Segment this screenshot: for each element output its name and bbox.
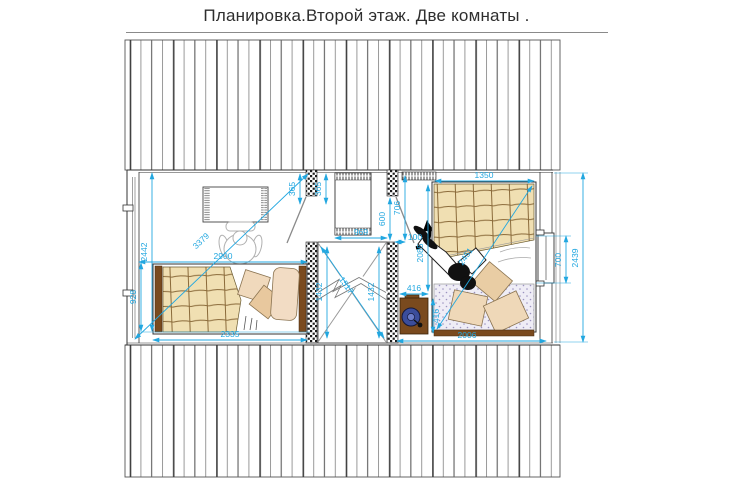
dim-right-bed-length: 2085 bbox=[415, 243, 425, 262]
roof-planks-bottom bbox=[125, 345, 560, 477]
dim-desk-width: 416 bbox=[407, 283, 421, 293]
roof-planks-top bbox=[125, 40, 560, 170]
dim-closet-width: 969 bbox=[354, 227, 368, 237]
left-bed-headboard bbox=[155, 266, 162, 332]
left-window-handle-top bbox=[123, 205, 133, 211]
right-bed-footboard bbox=[434, 330, 534, 336]
dim-left-width-top: 2900 bbox=[214, 251, 233, 261]
dim-stairs-right: 1432 bbox=[366, 282, 376, 301]
left-bed bbox=[153, 264, 307, 334]
dim-left-diagonal: 3379 bbox=[191, 231, 212, 251]
dim-left-window-zone: 928 bbox=[128, 290, 138, 304]
right-desk bbox=[400, 295, 428, 334]
dim-right-room-width: 2006 bbox=[458, 330, 477, 340]
dim-closet-wall: 100 bbox=[408, 232, 422, 242]
left-bed-footboard bbox=[299, 266, 306, 332]
dim-desk-depth: 416 bbox=[431, 309, 441, 323]
dim-wall-seg-left: 365 bbox=[287, 182, 297, 196]
left-bed-quilt bbox=[163, 267, 241, 332]
dim-stairs-left: 1432 bbox=[314, 282, 324, 301]
dim-right-bed-width: 1350 bbox=[475, 170, 494, 180]
left-bed-pillow-3 bbox=[270, 267, 300, 321]
left-desk bbox=[203, 187, 268, 222]
dim-left-room-height: 2442 bbox=[139, 242, 149, 261]
dim-wall-seg-right: 365 bbox=[313, 182, 323, 196]
wardrobe bbox=[335, 173, 371, 235]
dim-closet-depth-back: 706 bbox=[392, 201, 402, 215]
dim-right-room-height: 2439 bbox=[570, 248, 580, 267]
dim-left-bed-width: 2335 bbox=[221, 329, 240, 339]
dim-right-window-width: 700 bbox=[553, 253, 563, 267]
dim-closet-depth-front: 600 bbox=[377, 212, 387, 226]
right-bed-pillow-1 bbox=[448, 290, 487, 326]
floor-plan-drawing: 2442 928 3379 2900 2335 365 365 969 600 … bbox=[0, 0, 733, 502]
